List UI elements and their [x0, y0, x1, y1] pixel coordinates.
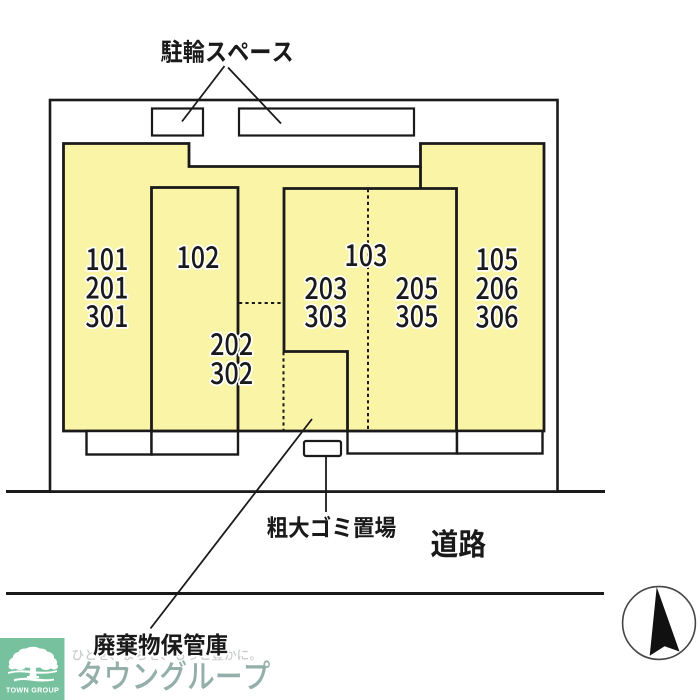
svg-text:TOWN GROUP: TOWN GROUP	[6, 686, 59, 695]
